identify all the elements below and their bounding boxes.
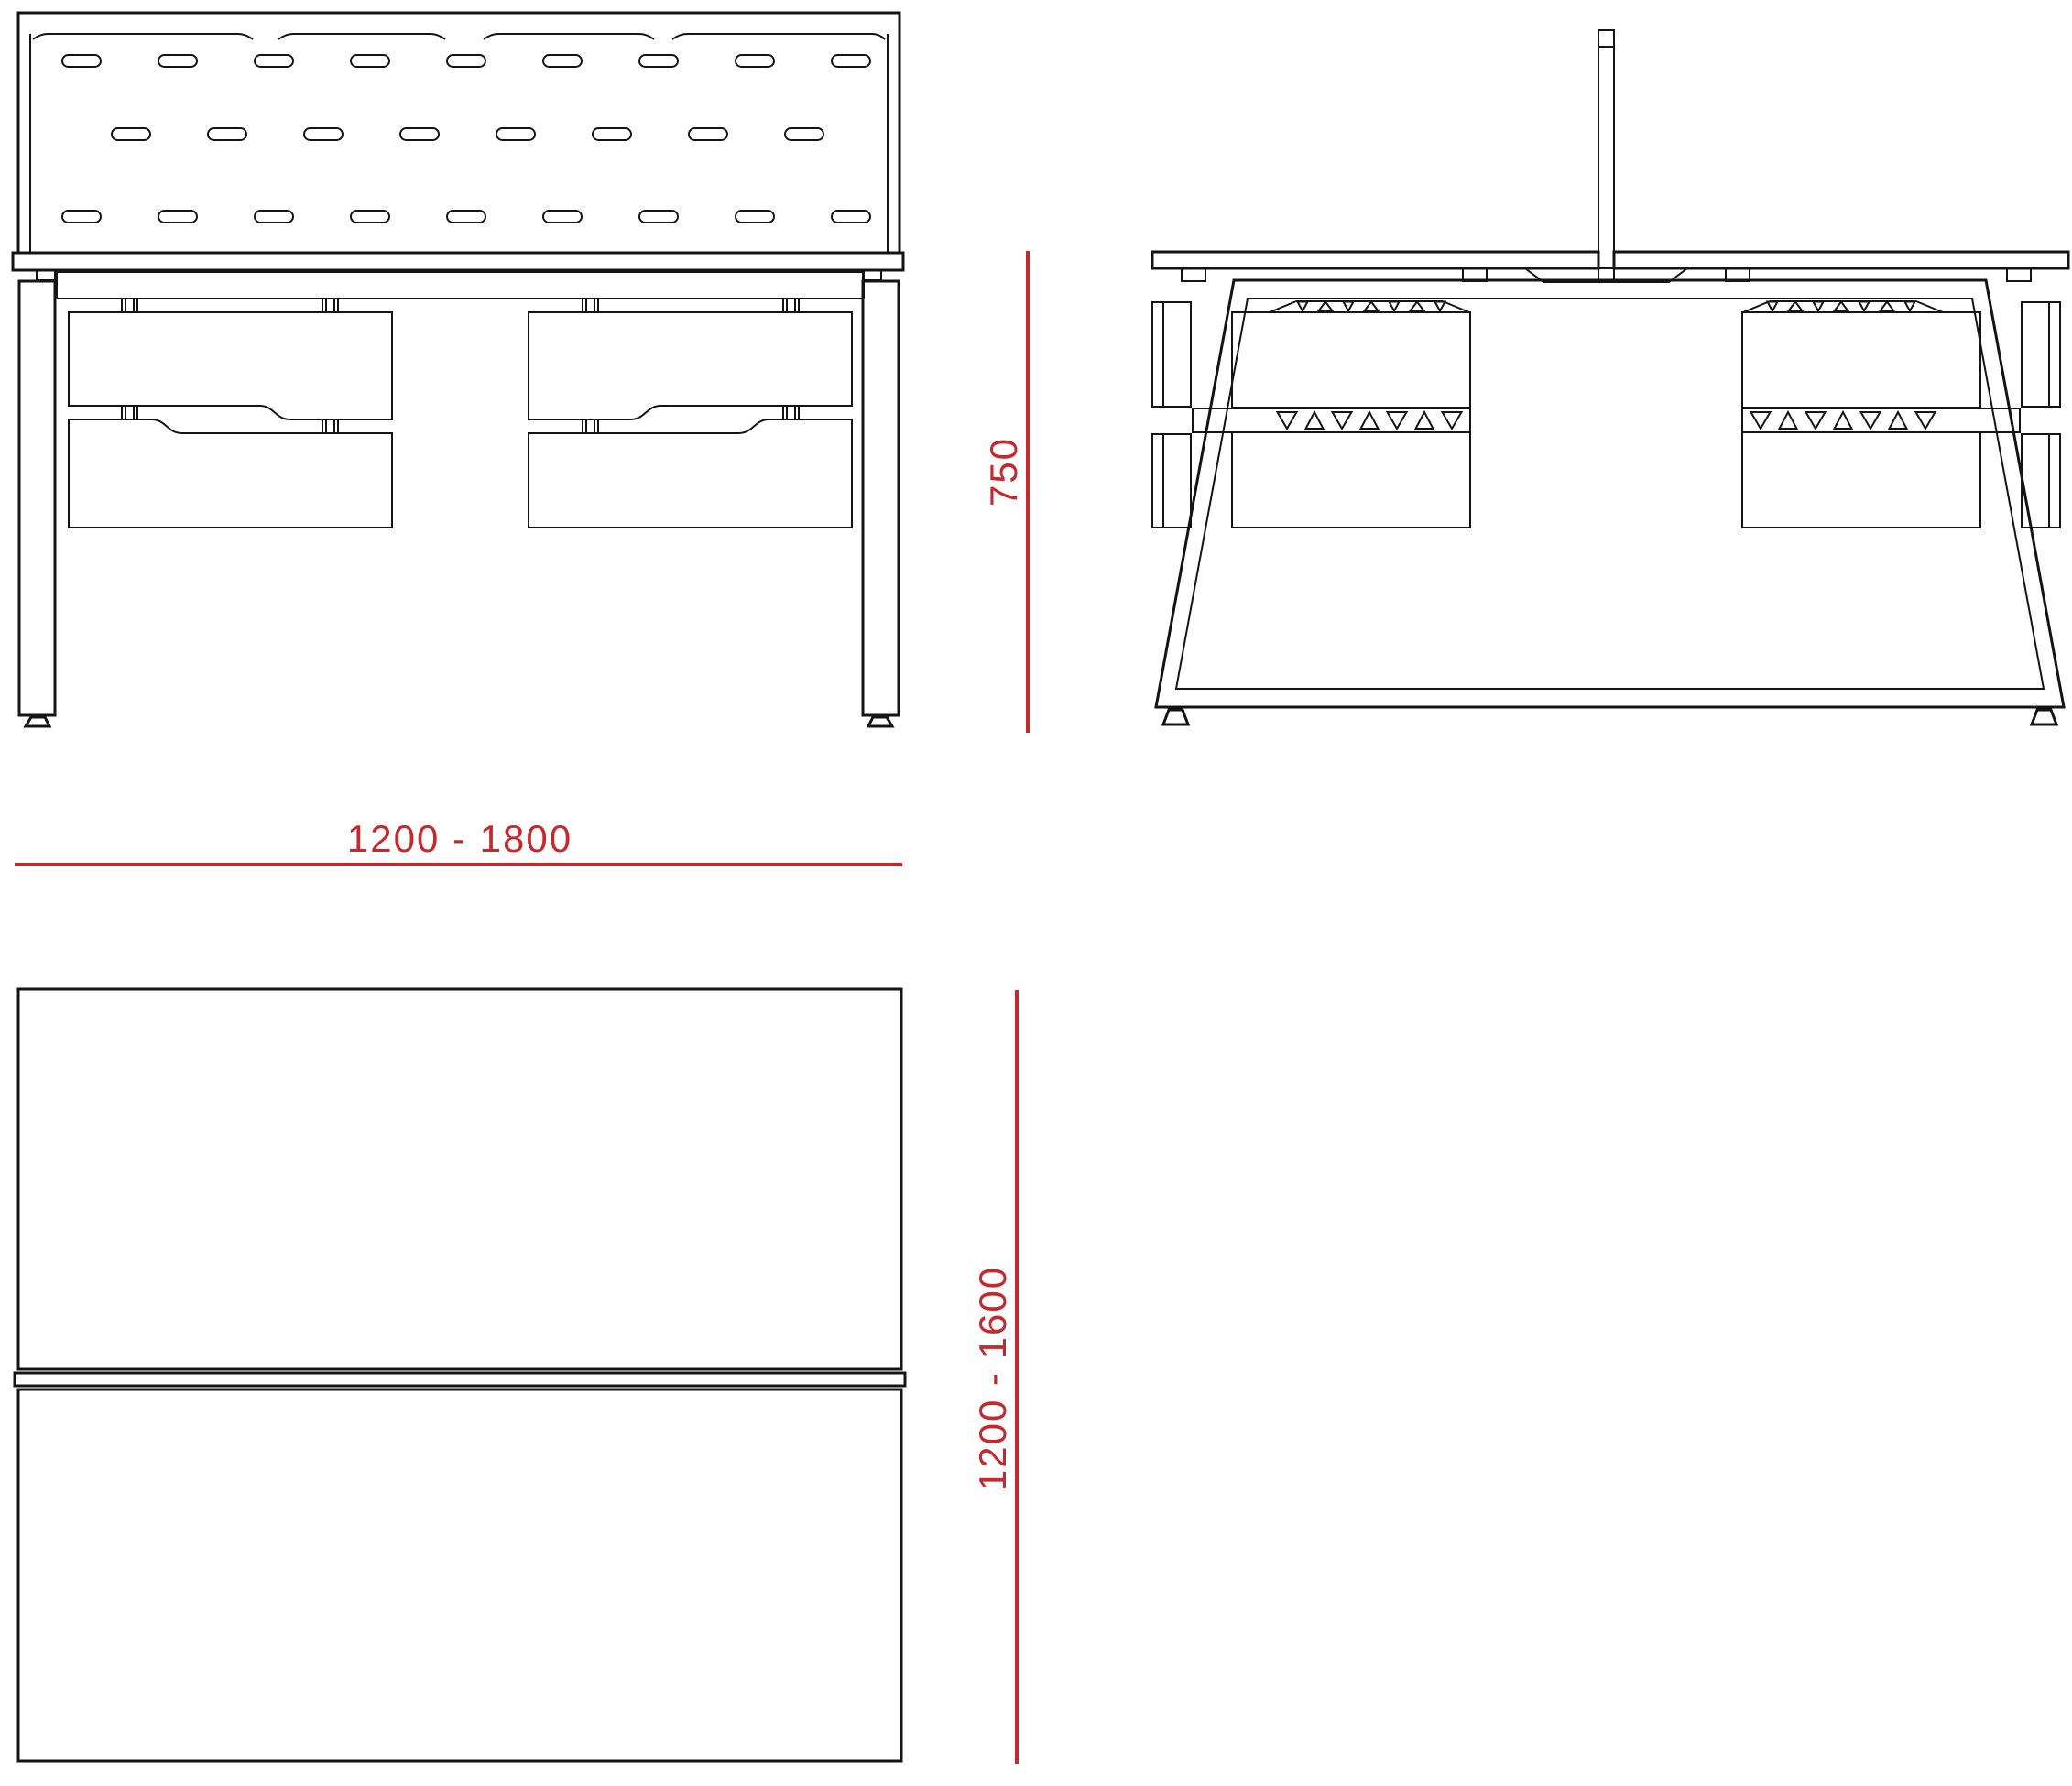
screen-top-scallop: [672, 34, 885, 39]
drawer-bracket: [334, 419, 338, 433]
drawer-bracket: [122, 299, 125, 312]
divider-screen-plan: [15, 1373, 905, 1386]
drawer-bracket: [334, 299, 338, 312]
slide-triangle-pattern-large: [1278, 412, 1462, 429]
desktop-side-left: [1152, 252, 1598, 268]
plan-view: [15, 989, 905, 1761]
drawer-unit-right: [529, 299, 852, 528]
width-dimension-label: 1200 - 1800: [347, 817, 573, 860]
aframe-outer: [1156, 280, 2064, 707]
dimension-annotations: 1200 - 1800 750 1200 - 1600: [15, 251, 1028, 1764]
technical-drawing-sheet: 1200 - 1800 750 1200 - 1600: [0, 0, 2072, 1786]
frame-rail-front: [57, 272, 864, 299]
aframe-inner: [1176, 299, 2044, 689]
desktop-front: [13, 253, 903, 270]
drawer-bracket: [322, 419, 326, 433]
drawer-pedestal-side-right: [1742, 301, 2060, 528]
drawer-top-front: [69, 312, 392, 419]
desk-bracket: [1182, 268, 1205, 281]
screen-top-scallop: [484, 34, 654, 39]
pedestal-drawer-top: [1232, 312, 1470, 408]
drawer-bracket: [122, 406, 125, 419]
front-view: [13, 13, 903, 726]
slide-strip-slant: [1270, 301, 1296, 312]
pedestal-edge-panel-lower: [1152, 434, 1191, 528]
drawer-pedestal-side: [1152, 301, 1470, 528]
screen-top-scallop: [33, 34, 253, 39]
divider-screen-side: [1598, 30, 1614, 281]
side-foot-right: [2032, 710, 2056, 724]
screen-panel: [18, 13, 900, 253]
desk-dimension-drawing: 1200 - 1800 750 1200 - 1600: [0, 0, 2072, 1786]
drawer-bracket: [134, 406, 137, 419]
desktop-side-right: [1614, 252, 2068, 268]
desk-bracket: [2007, 268, 2031, 281]
front-leg: [19, 281, 55, 726]
height-dimension-label: 750: [982, 437, 1025, 506]
leveling-foot: [26, 717, 49, 726]
leg-bracket: [863, 270, 881, 280]
leg-bracket: [37, 270, 55, 280]
desktop-plan-back: [18, 989, 901, 1369]
screen-top-scallop: [278, 34, 445, 39]
drawer-unit: [69, 299, 392, 528]
depth-dimension-label: 1200 - 1600: [971, 1266, 1014, 1491]
pedestal-drawer-bottom: [1232, 432, 1470, 528]
drawer-bottom-front: [69, 419, 392, 528]
pedestal-edge-panel-upper: [1152, 302, 1191, 407]
leg-front: [19, 281, 55, 715]
drawer-bracket: [322, 299, 326, 312]
desktop-plan-front: [18, 1389, 901, 1761]
side-view: [1152, 30, 2068, 724]
drawer-bracket: [134, 299, 137, 312]
slide-triangle-pattern-small: [1298, 302, 1445, 311]
screen-perforation-slots: [62, 55, 870, 223]
leveling-foot: [1163, 710, 1188, 724]
front-leg-right: [863, 281, 899, 726]
slide-strip-slant: [1443, 301, 1469, 312]
side-foot: [1163, 710, 1188, 724]
